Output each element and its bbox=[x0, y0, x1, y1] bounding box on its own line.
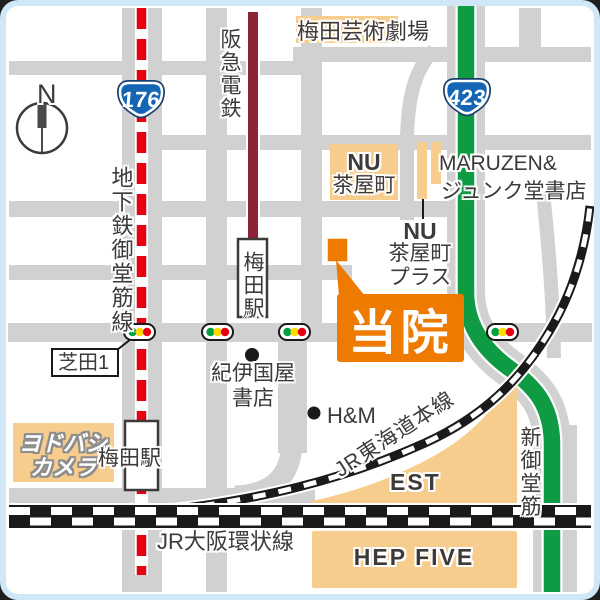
clinic-location-marker bbox=[327, 238, 348, 262]
hankyu-umeda-station-label: 梅田駅 bbox=[241, 251, 263, 320]
yodobashi-label-1: ヨドバシ bbox=[19, 432, 107, 455]
hep-five-label: HEP FIVE bbox=[354, 545, 474, 569]
kinokuniya-label-2: 書店 bbox=[232, 388, 274, 410]
access-map: N 176 423 地下鉄御堂筋線 阪急電鉄 梅田駅 梅田芸術劇場 NU 茶屋町… bbox=[0, 0, 600, 600]
traffic-light-4 bbox=[487, 324, 518, 340]
shibata1-label: 芝田1 bbox=[58, 353, 109, 374]
compass bbox=[17, 103, 67, 153]
traffic-light-3 bbox=[279, 324, 310, 340]
nu-plus-label-suffix: プラス bbox=[389, 267, 452, 289]
kinokuniya-dot bbox=[245, 348, 259, 362]
map-frame: N 176 423 地下鉄御堂筋線 阪急電鉄 梅田駅 梅田芸術劇場 NU 茶屋町… bbox=[0, 0, 600, 600]
jr-loop-label: JR大阪環状線 bbox=[157, 530, 294, 553]
yodobashi-label-2: カメラ bbox=[30, 456, 96, 479]
nu-chayamachi-label-name: 茶屋町 bbox=[333, 175, 396, 197]
nu-plus-label-name: 茶屋町 bbox=[389, 243, 452, 265]
nu-plus-label-nu: NU bbox=[403, 219, 436, 243]
clinic-label: 当院 bbox=[348, 293, 452, 363]
subway-midosuji-label: 地下鉄御堂筋線 bbox=[109, 166, 132, 334]
route-423-number: 423 bbox=[447, 85, 487, 111]
traffic-light-2 bbox=[202, 324, 233, 340]
hankyu-label: 阪急電鉄 bbox=[218, 28, 240, 120]
kinokuniya-label-1: 紀伊国屋 bbox=[211, 363, 295, 385]
shin-midosuji-label: 新御堂筋 bbox=[518, 426, 540, 518]
clinic-callout: 当院 bbox=[337, 294, 464, 362]
maruzen-label-2: ジュンク堂書店 bbox=[441, 181, 587, 203]
hm-label: H&M bbox=[327, 404, 376, 427]
jr-loop-railway bbox=[9, 503, 591, 530]
jr-umeda-station-label: 梅田駅 bbox=[98, 448, 161, 470]
umeda-arts-theater-label: 梅田芸術劇場 bbox=[297, 20, 429, 43]
hm-dot bbox=[308, 407, 321, 420]
est-label: EST bbox=[390, 470, 441, 494]
compass-label: N bbox=[37, 80, 57, 108]
maruzen-label-1: MARUZEN& bbox=[439, 153, 557, 175]
map-canvas bbox=[0, 0, 600, 600]
route-176-number: 176 bbox=[121, 87, 161, 113]
nu-chayamachi-label-nu: NU bbox=[347, 150, 380, 174]
